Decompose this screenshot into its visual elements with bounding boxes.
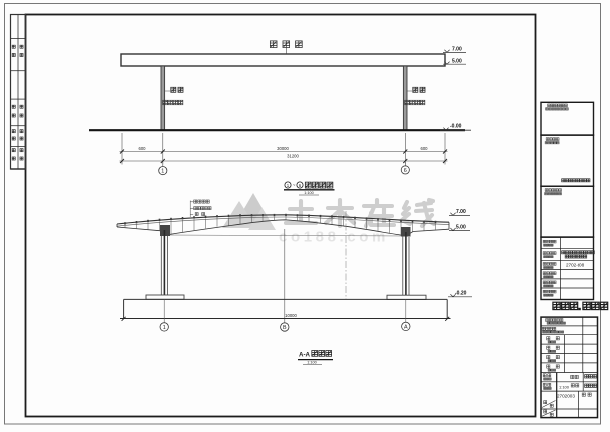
- svg-text:7.00: 7.00: [456, 209, 466, 215]
- svg-text:1:100: 1:100: [304, 191, 314, 195]
- svg-text:6: 6: [299, 183, 302, 188]
- svg-text:A-A: A-A: [299, 352, 311, 359]
- svg-text:2702003: 2702003: [557, 394, 575, 399]
- svg-text:30000: 30000: [277, 146, 289, 151]
- svg-text:co188.com: co188.com: [279, 229, 389, 246]
- svg-text:-0.20: -0.20: [455, 291, 467, 297]
- svg-text:1:100: 1:100: [307, 361, 317, 365]
- svg-text:1: 1: [161, 169, 164, 175]
- svg-text:10000: 10000: [285, 313, 297, 318]
- svg-text:-0.00: -0.00: [450, 124, 462, 130]
- svg-text:1: 1: [287, 183, 290, 188]
- svg-text:5.00: 5.00: [456, 224, 466, 230]
- svg-text:31200: 31200: [287, 154, 299, 159]
- svg-text:2702-t08: 2702-t08: [566, 263, 585, 268]
- svg-text:1:100: 1:100: [559, 384, 570, 389]
- svg-text:7.00: 7.00: [452, 47, 462, 53]
- svg-text:A: A: [404, 325, 408, 331]
- svg-text:600: 600: [421, 146, 429, 151]
- svg-text:~: ~: [293, 183, 296, 188]
- svg-text:600: 600: [139, 146, 147, 151]
- svg-text:B: B: [283, 325, 287, 331]
- svg-text:5.00: 5.00: [452, 58, 462, 64]
- svg-text:6: 6: [404, 168, 407, 174]
- svg-text:1: 1: [163, 325, 166, 331]
